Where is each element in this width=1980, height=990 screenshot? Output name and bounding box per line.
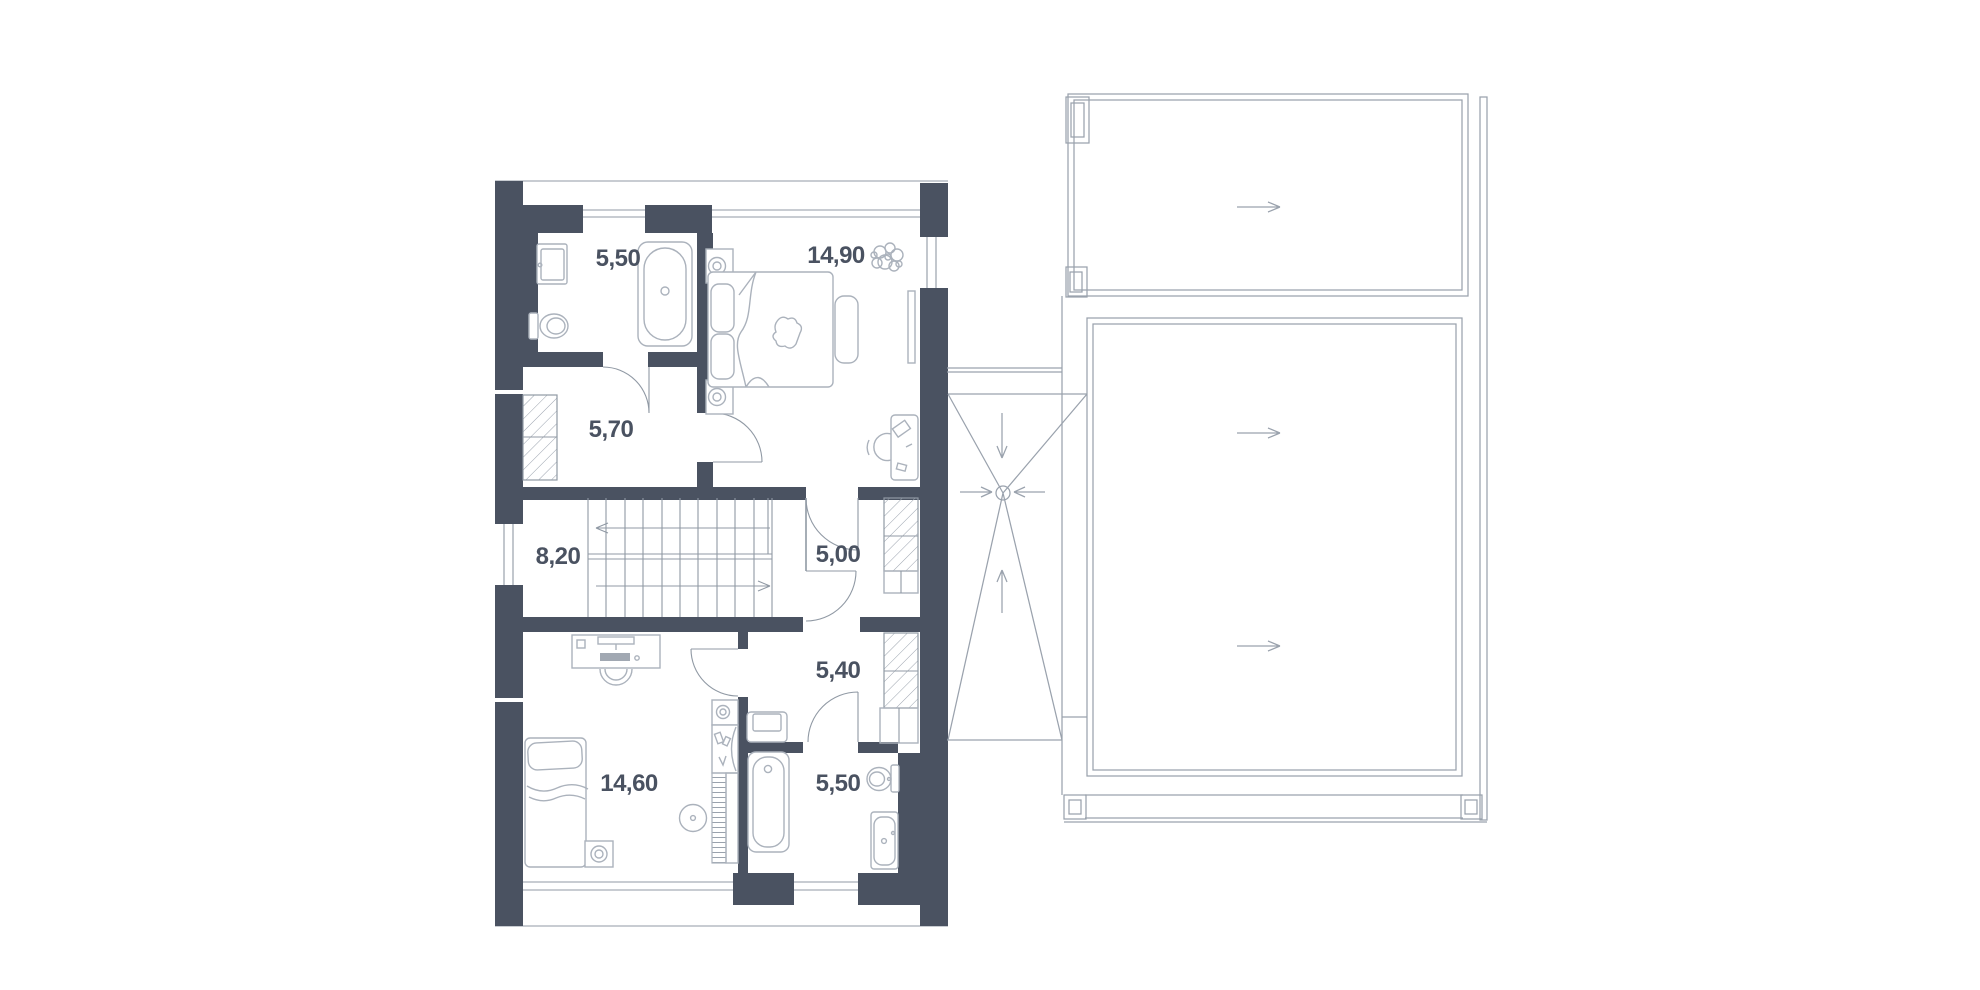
desk-icon [572, 635, 660, 668]
slope-arrow-left-icon [1014, 487, 1045, 497]
shelf-cabinet-icon [712, 700, 738, 773]
floor-plan-drawing: 5,50 14,90 5,70 8,20 5,00 5,40 14,60 5,5… [0, 0, 1980, 990]
roof-outline [1062, 94, 1487, 822]
plant-icon [871, 243, 903, 271]
washing-machine-icon [747, 712, 787, 742]
room-area-label: 14,90 [807, 242, 865, 269]
chair-icon [867, 434, 891, 461]
chair-icon [600, 669, 632, 685]
nightstand-icon [585, 841, 613, 867]
room-area-label: 5,70 [589, 416, 634, 443]
stair-up-arrow-icon [596, 523, 770, 533]
roof-slope-arrow-icon [1237, 202, 1280, 212]
stair-down-arrow-icon [596, 581, 770, 591]
slope-arrow-up-icon [997, 570, 1007, 613]
room-area-label: 5,40 [816, 657, 861, 684]
bathtub-icon [638, 242, 692, 346]
room-area-label: 5,00 [816, 541, 861, 568]
desk-icon [891, 415, 918, 480]
sink-icon [871, 812, 898, 869]
stairs [588, 498, 772, 617]
room-area-label: 5,50 [816, 770, 861, 797]
wardrobe-icon [880, 633, 918, 743]
wardrobe-icon [523, 395, 557, 480]
chimney [1064, 97, 1482, 819]
room-area-label: 14,60 [600, 770, 658, 797]
roof-slope-arrow-icon [1237, 428, 1280, 438]
toilet-icon [529, 313, 568, 339]
single-bed-icon [525, 738, 588, 867]
sink-icon [537, 244, 567, 284]
wardrobe-icon [884, 498, 918, 593]
floor-plan-page: 5,50 14,90 5,70 8,20 5,00 5,40 14,60 5,5… [0, 0, 1980, 990]
tv-icon [908, 291, 915, 363]
toilet-icon [867, 765, 899, 792]
roof-slope-arrow-icon [1237, 641, 1280, 651]
double-bed-icon [708, 272, 833, 387]
bed-bench-icon [835, 296, 858, 363]
room-area-label: 5,50 [596, 245, 641, 272]
slope-arrow-down-icon [997, 413, 1007, 458]
room-area-label: 8,20 [536, 543, 581, 570]
pouf-icon [680, 805, 707, 832]
ladder-rack-icon [712, 773, 738, 863]
slope-arrow-right-icon [960, 487, 992, 497]
terrace-roof [947, 368, 1087, 740]
bathtub-icon [748, 752, 789, 852]
